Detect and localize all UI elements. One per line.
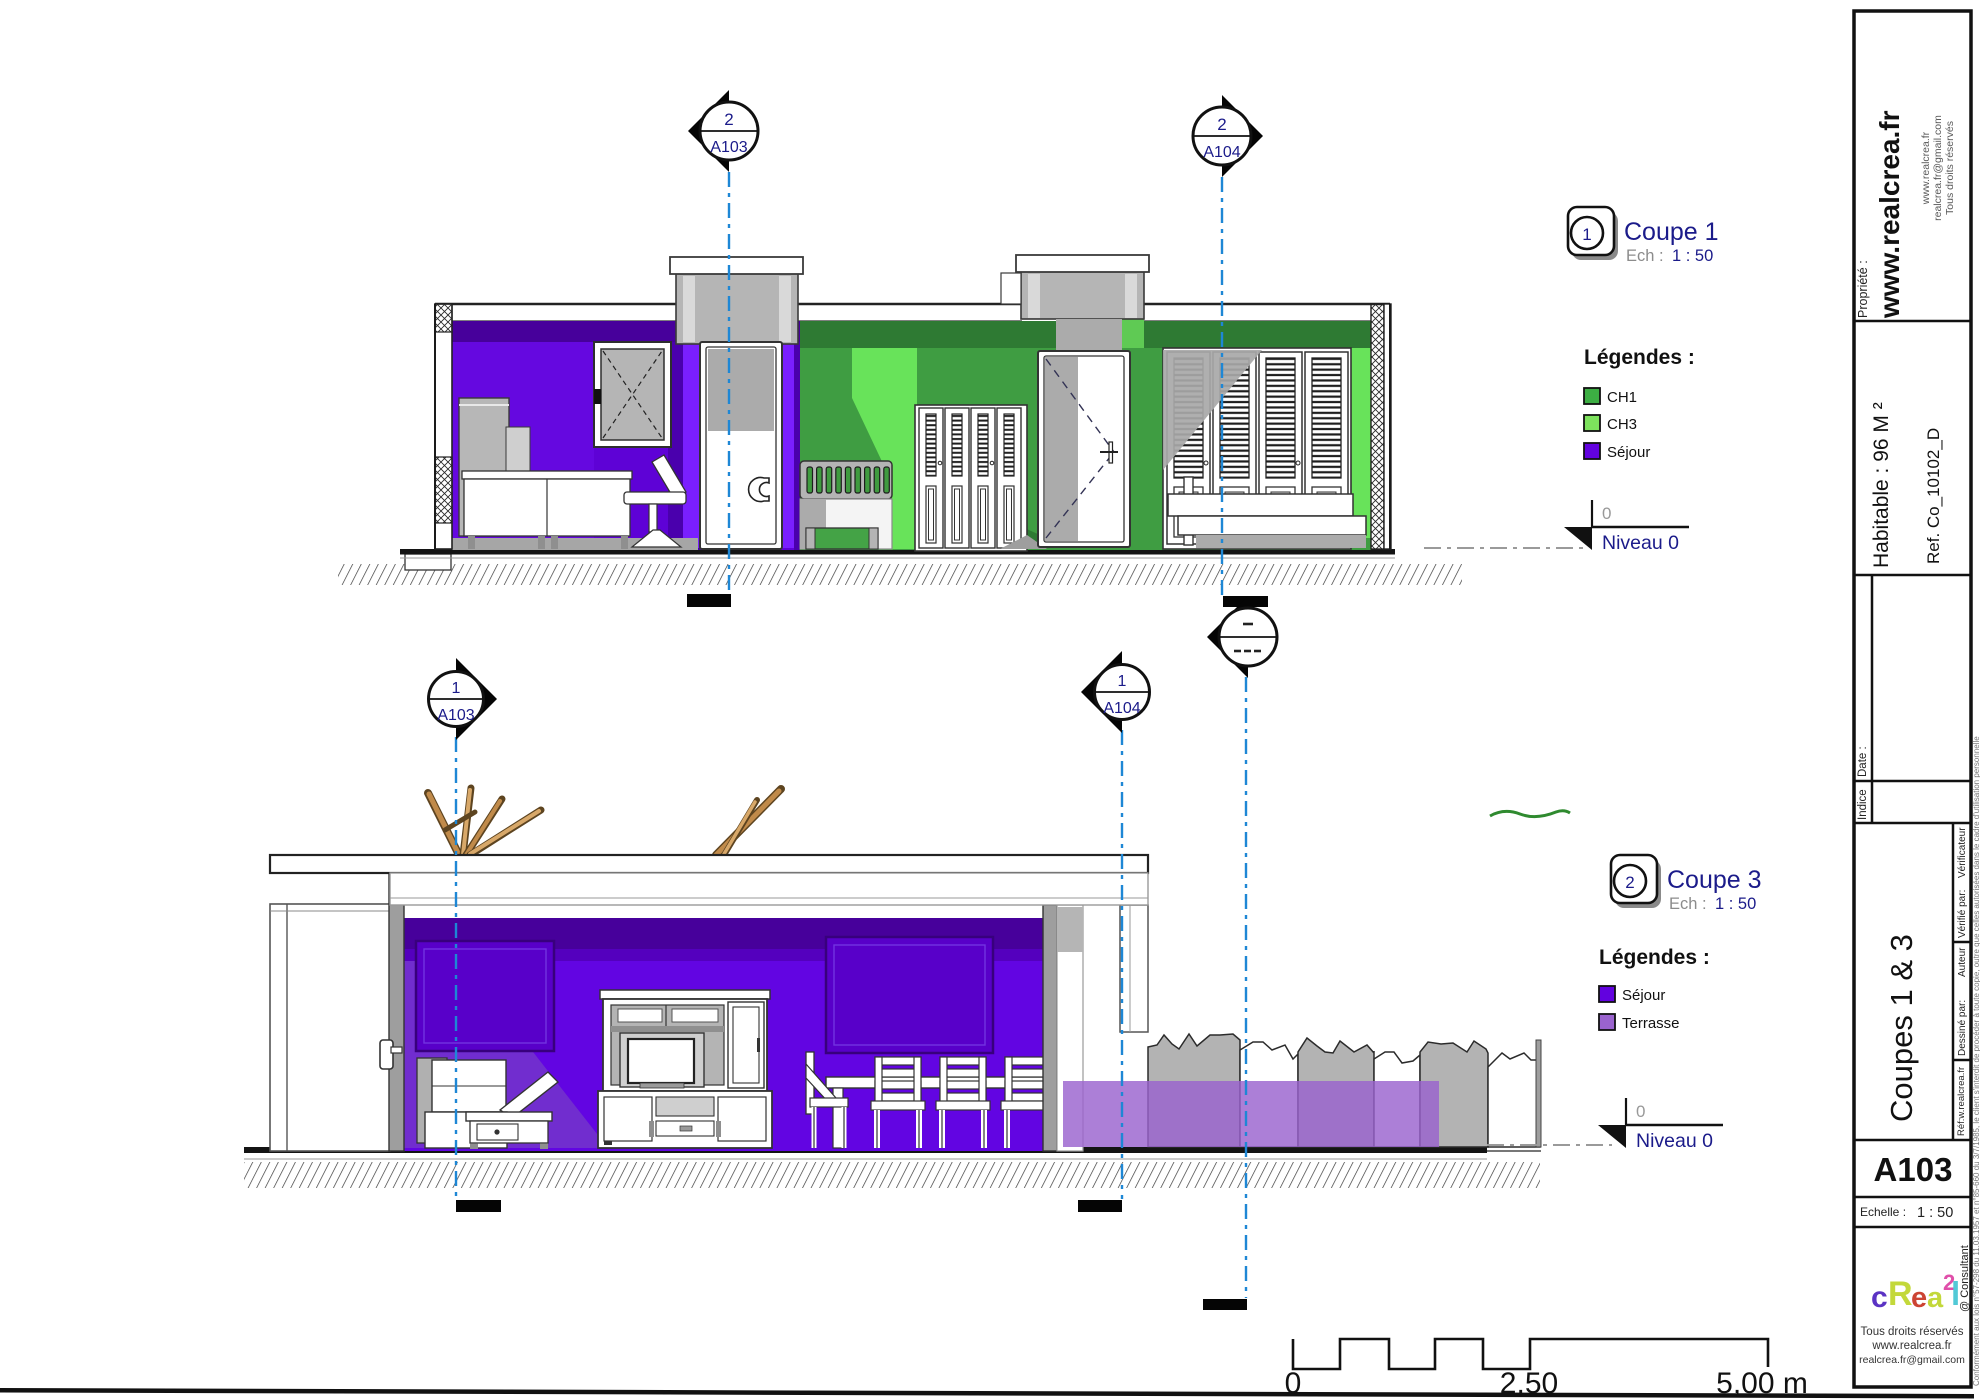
svg-text:1 : 50: 1 : 50 xyxy=(1917,1205,1953,1221)
svg-text:A103: A103 xyxy=(1874,1151,1953,1188)
svg-text:Coupes 1 & 3: Coupes 1 & 3 xyxy=(1884,934,1919,1122)
svg-text:c: c xyxy=(1871,1281,1888,1314)
svg-text:5,00 m: 5,00 m xyxy=(1716,1367,1808,1400)
svg-text:Vérificateur: Vérificateur xyxy=(1957,827,1968,878)
svg-text:2: 2 xyxy=(1625,873,1634,892)
svg-text:Auteur: Auteur xyxy=(1957,947,1968,977)
svg-text:Coupe 3: Coupe 3 xyxy=(1667,866,1762,894)
svg-text:A104: A104 xyxy=(1103,700,1140,717)
svg-text:Légendes :: Légendes : xyxy=(1599,946,1710,969)
svg-text:Habitable : 96 M ²: Habitable : 96 M ² xyxy=(1870,402,1893,568)
svg-text:Propriété :: Propriété : xyxy=(1856,260,1870,318)
svg-text:0: 0 xyxy=(1285,1367,1302,1400)
svg-text:Tous droits réservés: Tous droits réservés xyxy=(1944,121,1956,215)
svg-text:www.realcrea.fr: www.realcrea.fr xyxy=(1874,110,1905,319)
svg-text:Tous droits réservés: Tous droits réservés xyxy=(1861,1326,1964,1338)
svg-text:CH3: CH3 xyxy=(1607,416,1637,433)
svg-text:Séjour: Séjour xyxy=(1607,444,1650,461)
svg-text:A103: A103 xyxy=(710,139,747,156)
svg-text:realcrea.fr@gmail.com: realcrea.fr@gmail.com xyxy=(1932,115,1944,221)
svg-text:A103: A103 xyxy=(437,707,474,724)
svg-text:www.realcrea.fr: www.realcrea.fr xyxy=(1871,1340,1951,1352)
svg-text:1 : 50: 1 : 50 xyxy=(1672,247,1713,265)
svg-text:Dessiné par:: Dessiné par: xyxy=(1957,1000,1968,1056)
svg-text:a: a xyxy=(1927,1282,1944,1314)
svg-text:Echelle :: Echelle : xyxy=(1860,1205,1906,1219)
svg-text:0: 0 xyxy=(1636,1102,1645,1121)
svg-text:Ech :: Ech : xyxy=(1669,895,1707,913)
svg-text:1: 1 xyxy=(1118,673,1127,690)
svg-text:Date :: Date : xyxy=(1857,746,1869,777)
svg-text:Légendes :: Légendes : xyxy=(1584,346,1695,369)
svg-text:2: 2 xyxy=(1217,115,1226,134)
svg-text:Ech :: Ech : xyxy=(1626,247,1664,265)
svg-text:Terrasse: Terrasse xyxy=(1622,1015,1680,1032)
svg-text:Indice: Indice xyxy=(1857,789,1869,820)
svg-text:Vérifié par:: Vérifié par: xyxy=(1957,890,1968,938)
svg-text:realcrea.fr@gmail.com: realcrea.fr@gmail.com xyxy=(1859,1354,1965,1366)
svg-text:CH1: CH1 xyxy=(1607,389,1637,406)
svg-text:Niveau 0: Niveau 0 xyxy=(1636,1130,1713,1152)
svg-text:@ Consultant: @ Consultant xyxy=(1959,1245,1971,1312)
svg-text:Réf:w.realcrea.fr: Réf:w.realcrea.fr xyxy=(1956,1067,1967,1136)
svg-text:1: 1 xyxy=(452,680,461,697)
svg-text:1 : 50: 1 : 50 xyxy=(1715,895,1756,913)
svg-text:Ref. Co_10102_D: Ref. Co_10102_D xyxy=(1924,428,1943,564)
svg-text:A104: A104 xyxy=(1203,144,1240,161)
svg-text:Séjour: Séjour xyxy=(1622,987,1665,1004)
svg-text:0: 0 xyxy=(1602,504,1611,523)
svg-text:Niveau 0: Niveau 0 xyxy=(1602,532,1679,554)
svg-text:2: 2 xyxy=(724,110,733,129)
svg-text:e: e xyxy=(1911,1282,1927,1314)
svg-text:R: R xyxy=(1888,1275,1913,1313)
svg-text:Coupe 1: Coupe 1 xyxy=(1624,218,1719,246)
svg-text:2,50: 2,50 xyxy=(1500,1367,1558,1400)
svg-text:1: 1 xyxy=(1582,225,1591,244)
svg-text:Conformément aux lois n°57-298: Conformément aux lois n°57-298 du 11.03.… xyxy=(1972,736,1980,1386)
svg-text:www.realcrea.fr: www.realcrea.fr xyxy=(1920,131,1932,205)
